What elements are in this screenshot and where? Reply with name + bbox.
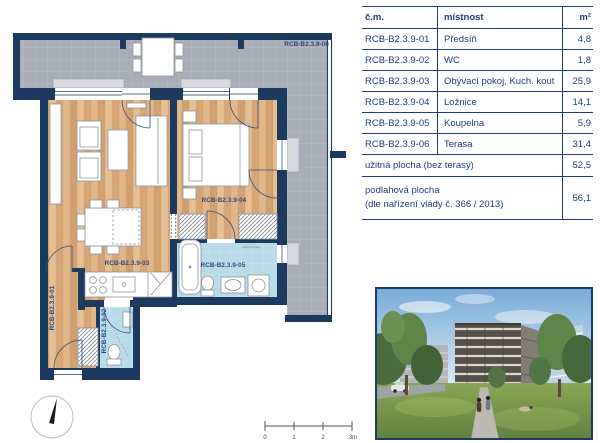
row-room: WC [438, 50, 562, 70]
building-rendering-photo [375, 287, 593, 440]
row-area: 4,8 [562, 29, 593, 49]
usable-area-row: užitná plocha (bez terasy) 52,5 [362, 155, 593, 177]
terrace-label: RCB-B2.3.9-06 [284, 41, 329, 48]
hall-label: RCB-B2.3.9-01 [49, 285, 56, 330]
svg-text:0: 0 [263, 435, 267, 441]
floor-area-label: podlahová plocha (dle nařízení vlády č. … [362, 177, 562, 219]
bathroom-label: RCB-B2.3.9-05 [201, 262, 246, 269]
row-room: Obývací pokoj, Kuch. kout [438, 71, 562, 91]
usable-area-label: užitná plocha (bez terasy) [362, 155, 562, 176]
floor-plan-drawing: RCB-B2.3.9-06 RCB-B2.3.9-03 RCB-B2.3.9-0… [0, 0, 362, 443]
row-code: RCB-B2.3.9-06 [362, 134, 438, 154]
svg-text:3m: 3m [349, 435, 357, 441]
row-area: 25,9 [562, 71, 593, 91]
table-row: RCB-B2.3.9-03 Obývací pokoj, Kuch. kout … [362, 71, 593, 92]
row-code: RCB-B2.3.9-05 [362, 113, 438, 133]
row-code: RCB-B2.3.9-01 [362, 29, 438, 49]
header-code: č.m. [362, 7, 438, 28]
header-room: místnost [438, 7, 562, 28]
floor-area-label-line2: (dle nařízení vlády č. 366 / 2013) [365, 198, 562, 212]
row-room: Koupelna [438, 113, 562, 133]
row-room: Terasa [438, 134, 562, 154]
usable-area-value: 52,5 [562, 155, 593, 176]
north-arrow-icon [31, 396, 73, 438]
bedroom-label: RCB-B2.3.9-04 [202, 197, 247, 204]
table-row: RCB-B2.3.9-04 Ložnice 14,1 [362, 92, 593, 113]
table-row: RCB-B2.3.9-01 Předsíň 4,8 [362, 29, 593, 50]
row-area: 14,1 [562, 92, 593, 112]
table-header-row: č.m. místnost m² [362, 6, 593, 29]
area-table: č.m. místnost m² RCB-B2.3.9-01 Předsíň 4… [362, 6, 593, 220]
floor-area-value: 56,1 [562, 177, 593, 219]
living-label: RCB-B2.3.9-03 [105, 260, 150, 267]
wc-label: RCB-B2.3.9-02 [101, 308, 108, 353]
scale-bar [265, 421, 352, 431]
row-area: 5,9 [562, 113, 593, 133]
row-area: 31,4 [562, 134, 593, 154]
svg-text:1: 1 [292, 435, 296, 441]
row-code: RCB-B2.3.9-02 [362, 50, 438, 70]
row-code: RCB-B2.3.9-04 [362, 92, 438, 112]
row-area: 1,8 [562, 50, 593, 70]
row-room: Ložnice [438, 92, 562, 112]
row-room: Předsíň [438, 29, 562, 49]
floor-area-row: podlahová plocha (dle nařízení vlády č. … [362, 177, 593, 220]
floor-area-label-line1: podlahová plocha [365, 184, 562, 198]
row-code: RCB-B2.3.9-03 [362, 71, 438, 91]
table-row: RCB-B2.3.9-06 Terasa 31,4 [362, 134, 593, 155]
scale-labels: 0 1 2 3m [263, 435, 357, 441]
table-row: RCB-B2.3.9-02 WC 1,8 [362, 50, 593, 71]
table-row: RCB-B2.3.9-05 Koupelna 5,9 [362, 113, 593, 134]
floorplan-sheet: RCB-B2.3.9-06 RCB-B2.3.9-03 RCB-B2.3.9-0… [0, 0, 600, 443]
svg-text:2: 2 [321, 435, 325, 441]
header-area: m² [562, 7, 593, 28]
